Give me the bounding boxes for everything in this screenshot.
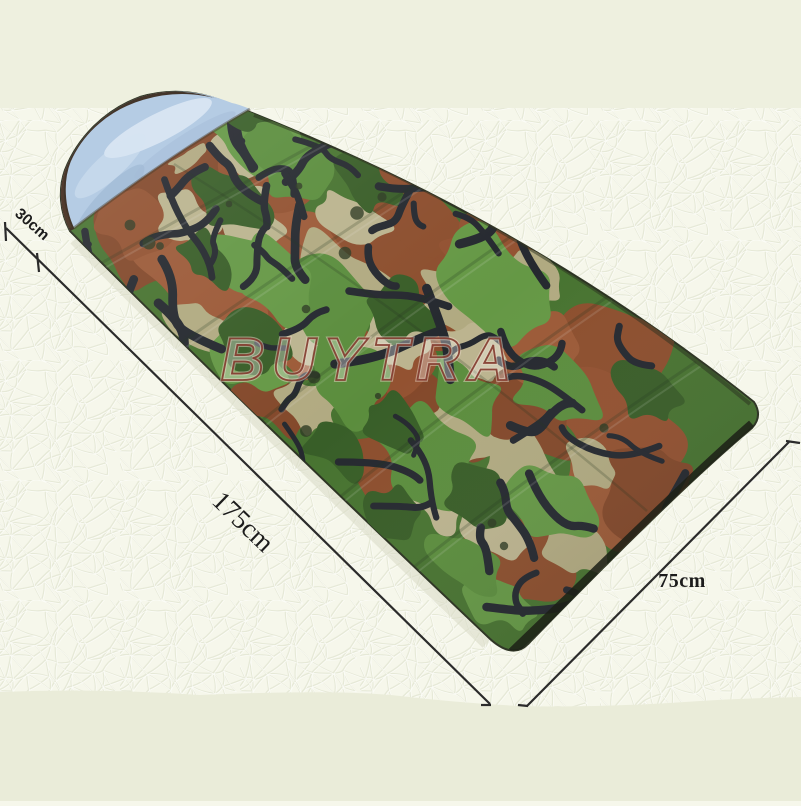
svg-text:75cm: 75cm: [658, 570, 706, 592]
svg-text:BUYTRA: BUYTRA: [221, 326, 519, 393]
